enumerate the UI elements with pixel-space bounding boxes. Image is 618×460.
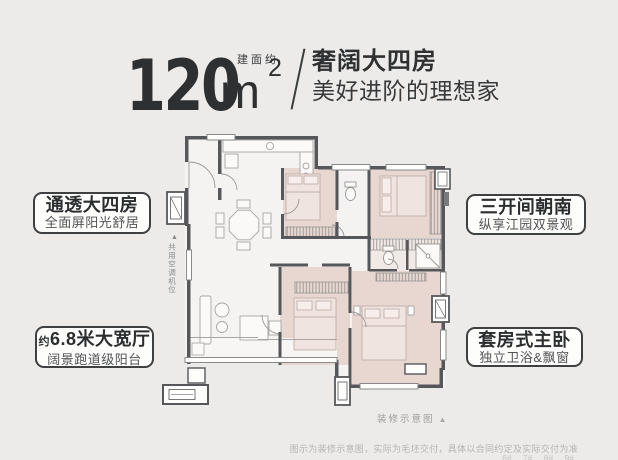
tagline-line2: 美好进阶的理想家 [312,78,500,104]
callout-title-prefix: 约 [38,336,50,348]
callout-subtitle: 独立卫浴&飘窗 [468,350,581,366]
shared-ac-triangle-icon: ▲ [171,234,178,241]
callout-four-bedrooms: 通透大四房 全面屏阳光舒居 [33,192,151,234]
balcony-cabinet [192,343,204,355]
area-exponent: 2 [268,56,282,81]
callout-title: 约6.8米大宽厅 [37,330,152,352]
callout-subtitle: 全面屏阳光舒居 [35,215,149,231]
callout-wide-living-room: 约6.8米大宽厅 阔景跑道级阳台 [35,326,154,368]
plan-caption-text: 装修示意图 [377,414,435,425]
poster: 120 建面约 m 2 奢阔大四房 美好进阶的理想家 通透大四房 全面屏阳光舒居… [0,0,618,460]
tagline-line1: 奢阔大四房 [312,49,500,75]
callout-title: 套房式主卧 [468,331,581,350]
callout-title: 三开间朝南 [468,198,584,217]
floor-plan [148,130,463,410]
shared-ac-label: 共用空调机位 [168,243,176,294]
north-triangle-icon: ▲ [439,415,447,424]
callout-master-suite: 套房式主卧 独立卫浴&飘窗 [466,327,583,367]
tagline: 奢阔大四房 美好进阶的理想家 [312,49,500,104]
callout-south-facing: 三开间朝南 纵享江园双景观 [466,194,586,235]
callout-title: 通透大四房 [35,196,149,215]
area-unit: m [220,69,260,117]
plan-caption: 装修示意图▲ [377,411,446,425]
divider-slash [291,48,306,109]
callout-subtitle: 纵享江园双景观 [468,217,584,233]
callout-subtitle: 阔景跑道级阳台 [37,352,152,368]
building-numbers: 6# 7# 8# 9# [502,453,574,460]
callout-title-text: 6.8米大宽厅 [50,329,151,349]
